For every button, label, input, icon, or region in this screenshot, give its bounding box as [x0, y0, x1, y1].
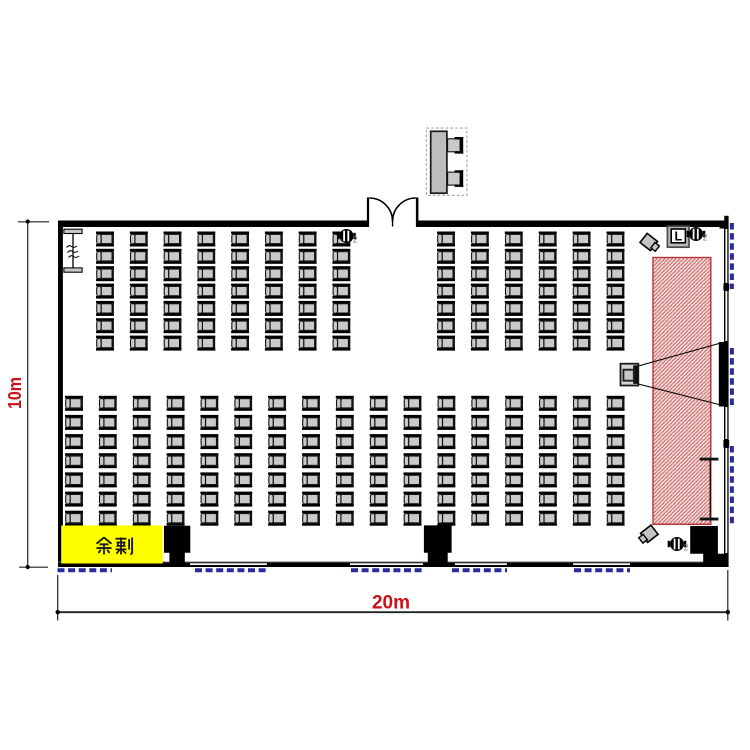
svg-text:L: L — [674, 230, 682, 244]
svg-text:2: 2 — [684, 543, 689, 553]
svg-text:10m: 10m — [4, 377, 25, 409]
svg-text:2: 2 — [703, 233, 708, 243]
svg-text:20m: 20m — [372, 593, 410, 614]
svg-text:2: 2 — [353, 235, 358, 245]
